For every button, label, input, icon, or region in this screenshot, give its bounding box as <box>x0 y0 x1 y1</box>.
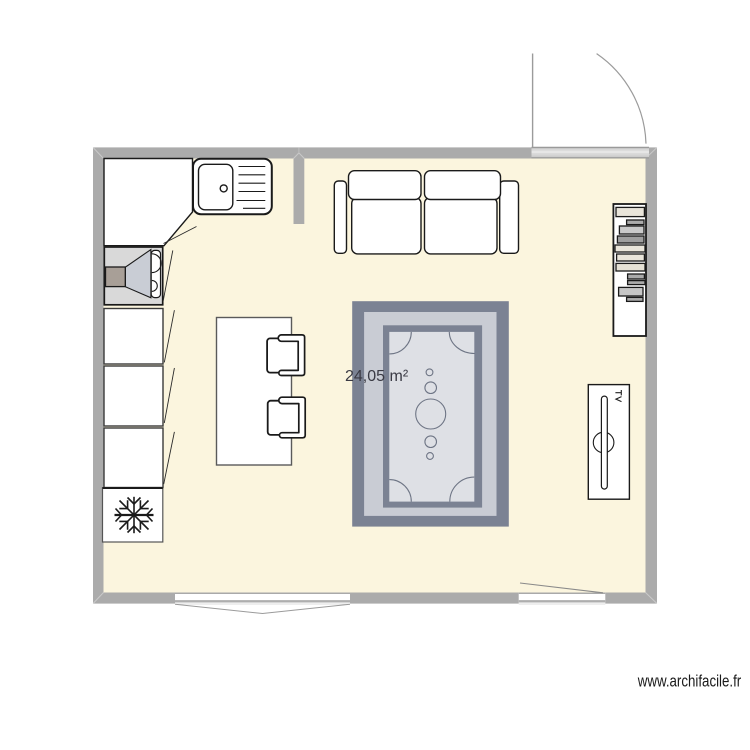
svg-text:www.archifacile.fr: www.archifacile.fr <box>637 672 741 691</box>
svg-text:24,05 m²: 24,05 m² <box>345 368 409 385</box>
